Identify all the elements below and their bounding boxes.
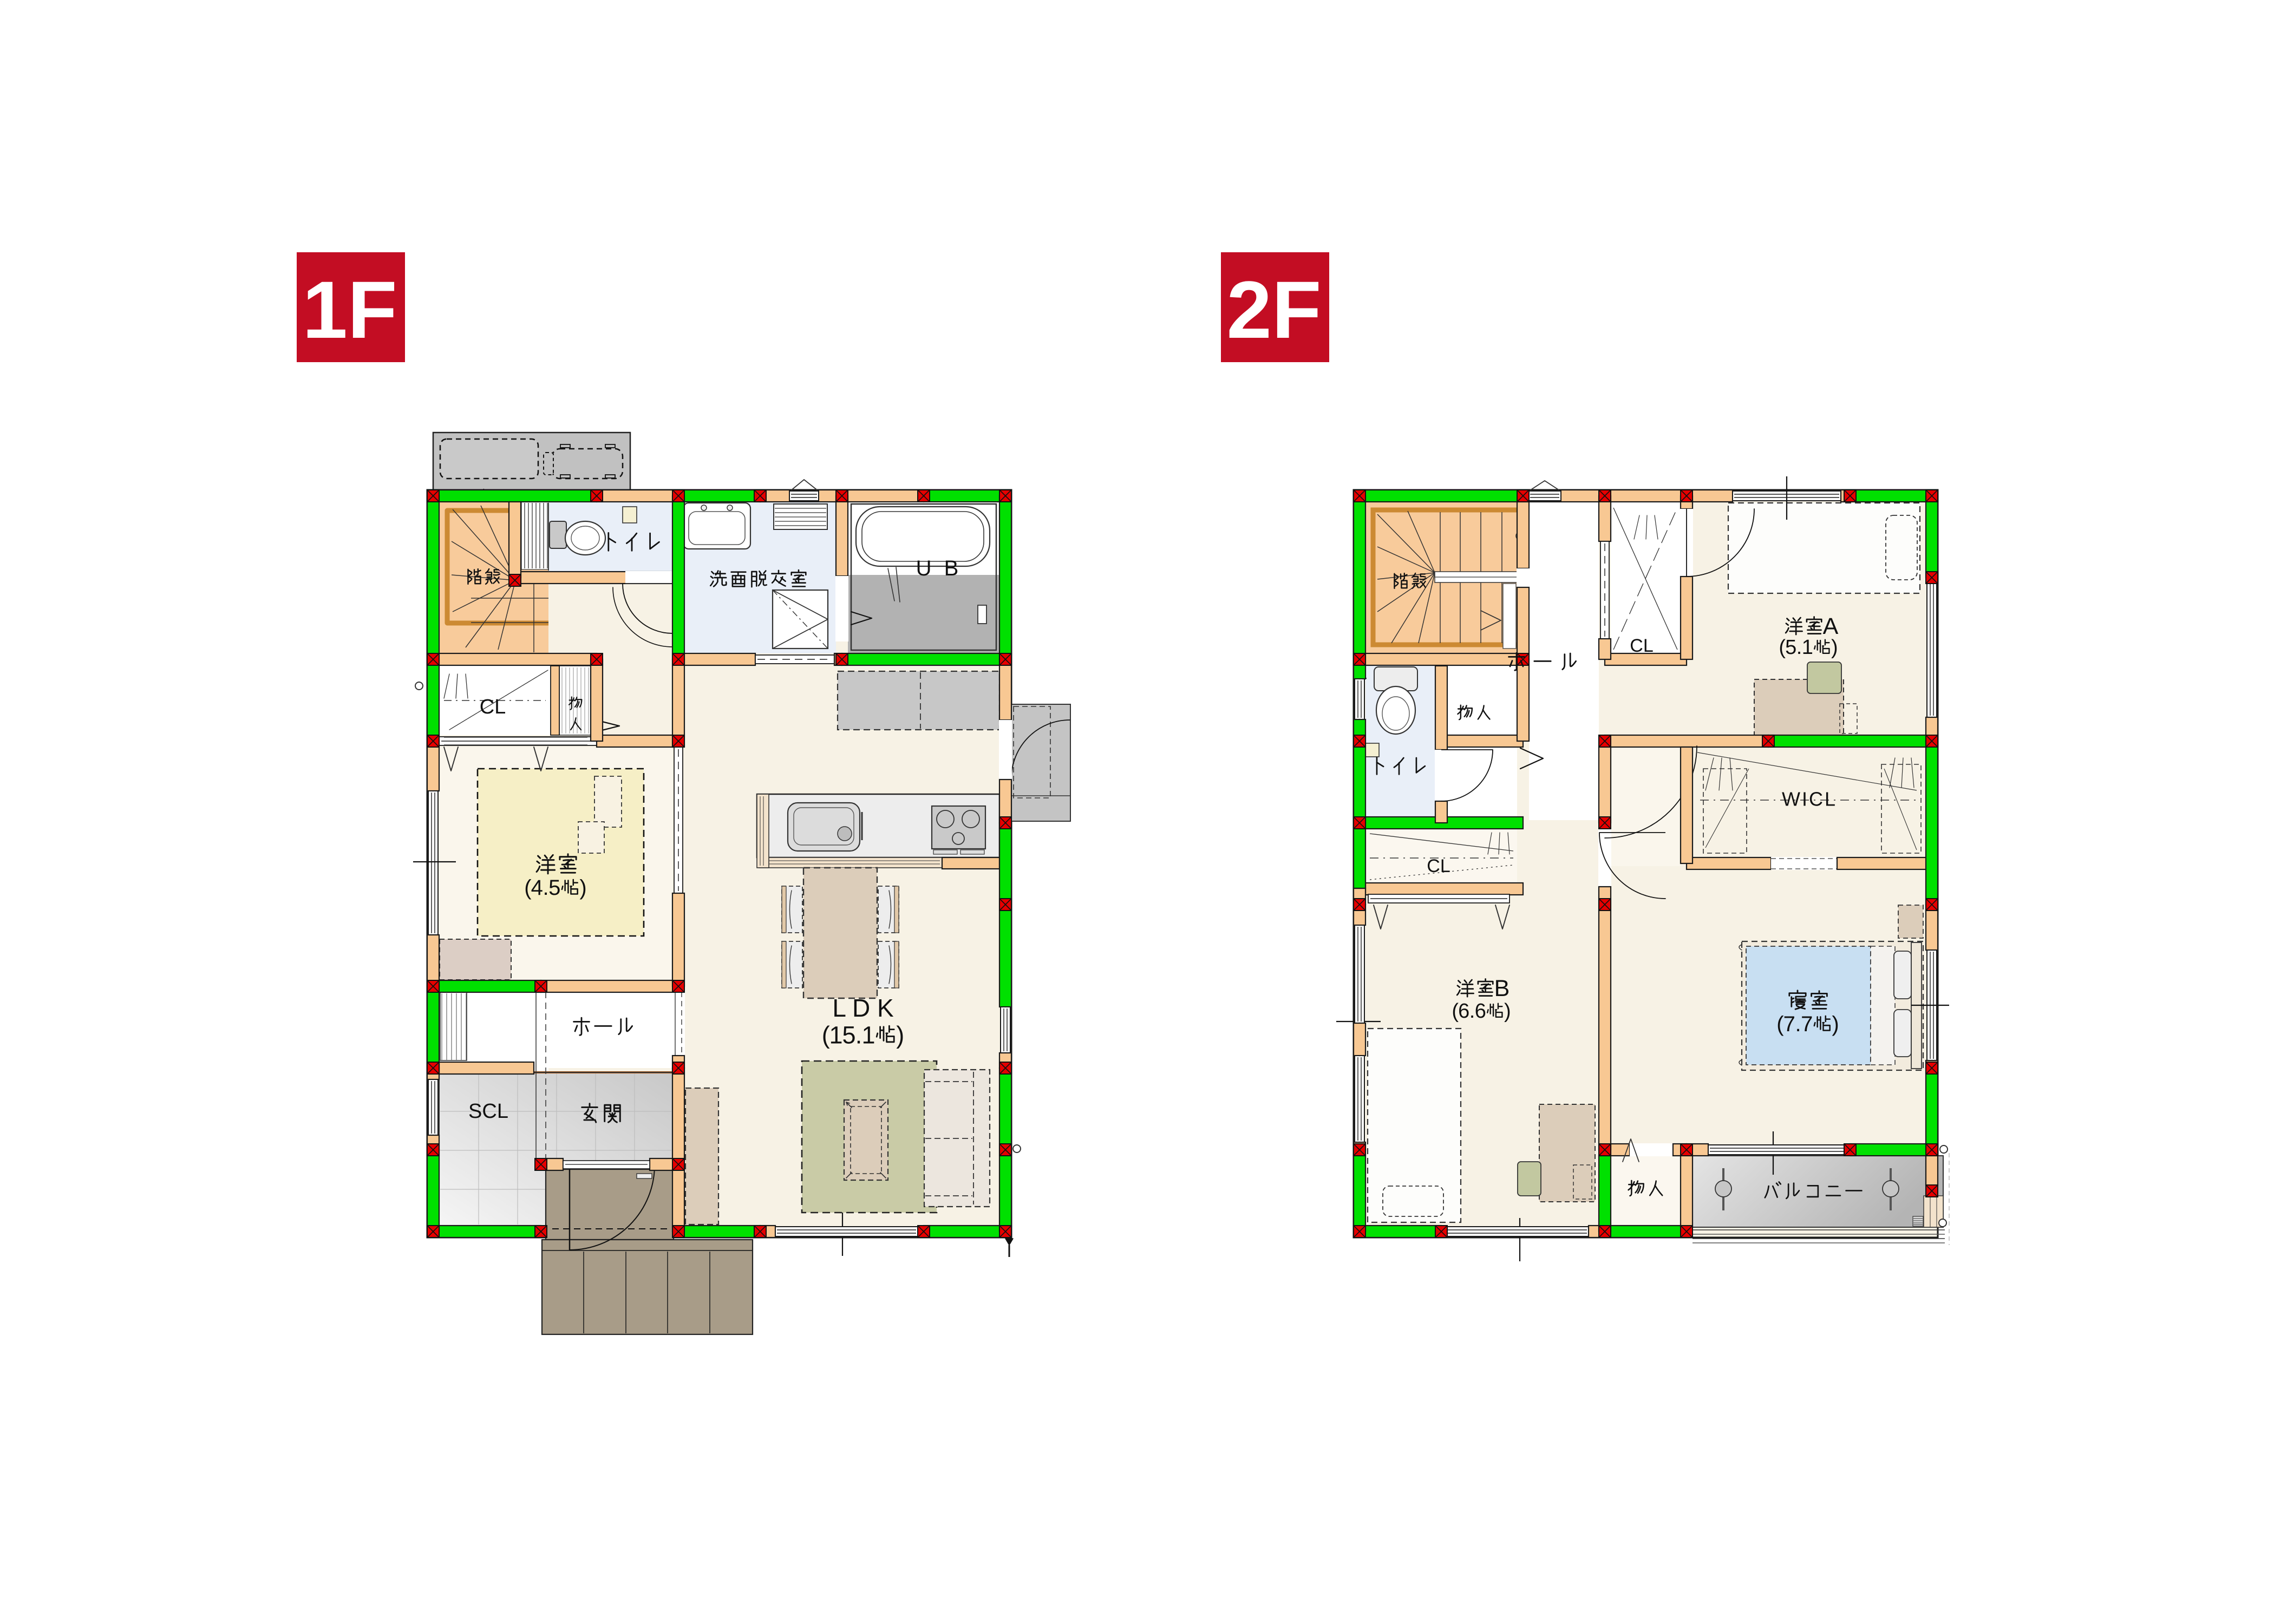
svg-text:.: . [1796,636,1802,659]
svg-text:B: B [1494,975,1510,1001]
svg-text:1: 1 [861,1021,875,1049]
svg-text:): ) [1832,1012,1839,1036]
svg-text:2F: 2F [1226,264,1321,355]
svg-text:1: 1 [1802,636,1813,659]
svg-text:.: . [1795,1012,1801,1036]
svg-text:): ) [896,1021,904,1049]
svg-text:CL: CL [480,696,506,718]
svg-text:): ) [579,876,586,900]
svg-text:.: . [1469,1000,1475,1023]
svg-text:7: 7 [1801,1012,1813,1036]
svg-text:CL: CL [1427,856,1450,876]
svg-text:4: 4 [531,876,543,900]
svg-text:): ) [1831,636,1838,659]
svg-text:1F: 1F [302,264,397,355]
svg-text:WICL: WICL [1782,788,1837,810]
svg-text:5: 5 [842,1021,855,1049]
svg-text:(: ( [822,1021,830,1049]
svg-text:SCL: SCL [468,1100,508,1123]
svg-text:6: 6 [1475,1000,1486,1023]
svg-text:5: 5 [1785,636,1796,659]
svg-text:A: A [1823,613,1839,639]
svg-text:7: 7 [1783,1012,1795,1036]
svg-text:): ) [1504,1000,1511,1023]
svg-text:L D K: L D K [832,994,894,1022]
svg-text:6: 6 [1458,1000,1469,1023]
svg-text:.: . [543,876,548,900]
svg-text:CL: CL [1630,636,1653,656]
svg-text:.: . [855,1021,862,1049]
svg-text:1: 1 [829,1021,842,1049]
svg-text:U B: U B [916,556,962,580]
svg-text:5: 5 [548,876,560,900]
